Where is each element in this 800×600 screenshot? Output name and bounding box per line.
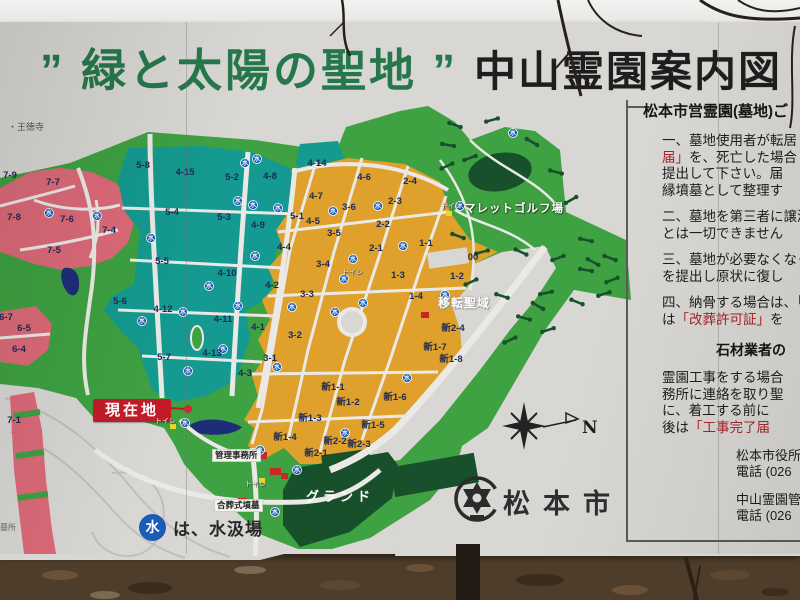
water-point-icon: 水 [184,367,193,376]
compass-north-label: N [582,418,598,438]
zone-label: 4-11 [214,314,233,325]
water-icon: 水 [139,514,166,541]
golf-hole-dot [450,232,454,236]
golf-hole-dot [513,335,517,339]
golf-hole-dot [439,166,443,170]
city-name: 松本市 [503,482,623,521]
golf-hole-dot [580,302,584,306]
communal-grave-label: 合葬式墳墓 [214,499,263,512]
golf-hole-dot [596,263,600,267]
zone-label: 4-1 [251,322,265,333]
water-point-icon: 水 [93,212,102,221]
notice-line: 届」を、死亡した場合 [662,150,800,167]
zone-label: 00 [468,252,479,263]
water-point-icon: 水 [234,197,243,206]
water-point-icon: 水 [241,159,250,168]
zone-label: 7-6 [60,214,74,225]
notice-line: を提出し原状に復し [662,269,800,286]
golf-hole-dot [452,144,456,148]
zone-label: 1-1 [419,238,433,249]
zone-label: 4-4 [277,242,291,253]
corner-note: 墓所 [0,522,16,533]
map-legend: 水 は、水汲場 [139,514,263,541]
golf-hole-dot [590,269,594,273]
zone-label: 5-7 [157,352,171,363]
zone-label: 4-7 [309,191,323,202]
zone-label: 5-3 [217,212,231,223]
water-point-icon: 水 [293,466,302,475]
golf-hole-dot [528,317,532,321]
zone-label: 2-3 [388,196,402,207]
golf-hole-dot [586,257,590,261]
golf-hole-mark [484,116,500,124]
zone-label: 新1-1 [321,381,345,393]
zone-label: 1-4 [409,291,423,302]
golf-hole-dot [461,236,465,240]
water-glyph: 水 [272,508,279,516]
water-glyph: 水 [242,159,249,167]
water-glyph: 水 [404,374,411,382]
golf-hole-dot [574,195,578,199]
golf-hole-dot [604,280,608,284]
zone-label: 1-2 [450,271,464,282]
water-glyph: 水 [510,129,517,137]
zone-label: 3-2 [288,330,302,341]
toilet-label: トイレ [342,267,363,277]
notice-line: に、着工する前に [662,403,800,420]
golf-hole-mark [564,195,579,205]
golf-hole-dot [540,330,544,334]
water-glyph: 水 [139,317,146,325]
golf-hole-dot [494,292,498,296]
golf-hole-dot [590,239,594,243]
notice-line: 四、納骨する場合は、「 [662,295,800,312]
notice-line: 一、墓地使用者が転居し [662,133,800,150]
zone-label: 2-4 [403,176,417,187]
golf-hole-dot [613,258,617,262]
zone-label: 新1-5 [361,419,385,431]
golf-hole-dot [560,171,564,175]
sign-panel-seam [186,22,187,554]
golf-hole-dot [531,301,535,305]
water-glyph: 水 [375,202,382,210]
zone-label: 6-4 [12,344,26,355]
zone-label: 新2-1 [304,447,328,459]
zone-label: 新1-4 [273,431,297,443]
notice-line: 提出して下さい。届 [662,166,800,183]
contact-tel: 電話 (026 [736,508,800,524]
golf-hole-dot [561,254,565,258]
zone-label: 4-14 [307,158,327,169]
zone-label: 7-1 [7,415,21,426]
golf-hole-dot [524,252,528,256]
water-point-icon: 水 [349,255,358,264]
golf-hole-dot [578,267,582,271]
golf-hole-dot [462,158,466,162]
golf-hole-dot [473,154,477,158]
zone-label: 6-7 [0,312,13,323]
zone-label: 4-10 [217,268,236,279]
water-point-icon: 水 [147,234,156,243]
notice-panel: 松本市営霊園(墓地)ご 一、墓地使用者が転居し 届」を、死亡した場合 提出して下… [626,100,800,542]
water-point-icon: 水 [138,317,147,326]
water-point-icon: 水 [331,308,340,317]
notice-subheader: 石材業者の [716,340,800,360]
contact-block: 松本市役所 電話 (026 [736,448,800,480]
golf-hole-dot [596,294,600,298]
golf-hole-dot [506,296,510,300]
zone-label: 5-2 [225,172,239,183]
golf-hole-dot [552,326,556,330]
zone-label: 4-3 [238,368,252,379]
golf-hole-dot [615,276,619,280]
zone-label: 新1-7 [423,341,446,353]
toilet-label: トイレ [245,479,266,489]
golf-hole-dot [538,292,542,296]
water-point-icon: 水 [288,303,297,312]
golf-hole-dot [564,201,568,205]
golf-hole-dot [486,248,490,252]
notice-line: 二、墓地を第三者に譲渡 [662,209,800,226]
zone-label: 新2-2 [323,435,346,447]
water-glyph: 水 [206,282,213,290]
golf-hole-dot [458,125,462,129]
zone-label: 5-5 [155,256,169,267]
golf-hole-dot [496,116,500,120]
water-glyph: 水 [360,299,367,307]
title-slogan: ” 緑と太陽の聖地 ” [40,45,458,96]
water-point-icon: 水 [329,207,338,216]
zone-label: 5-6 [113,296,127,307]
sign-panel-seam [718,22,719,554]
zone-label: 2-2 [376,219,390,230]
water-point-icon: 水 [274,204,283,213]
zone-label: 4-13 [202,348,221,359]
water-glyph: 水 [294,466,301,474]
notice-line: は「改葬許可証」を [662,312,800,329]
water-glyph: 水 [350,255,357,263]
notice-line: 務所に連絡を取り聖 [662,387,800,404]
golf-hole-dot [550,290,554,294]
water-glyph: 水 [148,234,155,242]
golf-hole-dot [608,290,612,294]
golf-hole-dot [569,298,573,302]
zone-label: 4-2 [265,280,279,291]
golf-hole-dot [474,277,478,281]
water-glyph: 水 [330,207,337,215]
golf-hole-dot [578,237,582,241]
golf-hole-dot [440,142,444,146]
title-main: 中山霊園案内図 [474,48,782,95]
photo-of-cemetery-sign: 水水水水水水水水水水水水水水水水水水水水水水水水水水水水水水水水水 5-84-1… [0,0,800,600]
zone-label: 3-3 [300,289,314,300]
water-point-icon: 水 [509,129,518,138]
water-point-icon: 水 [181,419,190,428]
water-point-icon: 水 [399,242,408,251]
golf-hole-dot [463,282,467,286]
water-point-icon: 水 [359,299,368,308]
golf-hole-dot [502,340,506,344]
zone-label: 5-1 [290,211,304,222]
water-glyph: 水 [289,303,296,311]
notice-line: とは一切できません [662,226,800,243]
water-point-icon: 水 [234,302,243,311]
golf-hole-dot [535,143,539,147]
zone-label: 1-3 [391,270,405,281]
zone-label: 4-6 [357,172,371,183]
water-point-icon: 水 [374,202,383,211]
zone-label: 2-1 [369,243,383,254]
zone-label: 5-8 [136,160,150,171]
water-point-icon: 水 [249,201,258,210]
water-point-icon: 水 [271,508,280,517]
admin-office-label: 管理事務所 [212,449,261,462]
temple-label: ・王徳寺 [8,120,44,133]
zone-label: 3-4 [316,259,330,270]
golf-hole-dot [513,247,517,251]
notice-line: 縁墳墓として整理す [662,183,800,200]
water-point-icon: 水 [45,209,54,218]
golf-hole-dot [447,121,451,125]
median-island [191,326,203,350]
water-point-icon: 水 [251,252,260,261]
water-glyph: 水 [252,252,259,260]
zone-label: 4-5 [306,216,320,227]
zone-label: 新1-3 [298,412,321,424]
notice-line: 後は「工事完了届 [662,420,800,437]
zone-label: 3-6 [342,202,356,213]
water-glyph: 水 [235,302,242,310]
zone-label: 7-9 [3,170,17,181]
golf-hole-dot [516,314,520,318]
water-glyph: 水 [332,308,339,316]
zone-label: 7-8 [7,212,21,223]
water-glyph: 水 [94,212,101,220]
water-point-icon: 水 [253,155,262,164]
zone-label: 7-4 [102,225,116,236]
mallet-golf-label: マレットゴルフ場 [464,200,564,216]
golf-hole-dot [550,258,554,262]
relocation-label: 移転聖域 [438,294,490,311]
water-glyph: 水 [400,242,407,250]
zone-label: 新1-8 [439,353,462,365]
contact-name: 松本市役所 [736,448,800,464]
zone-label: 新1-2 [336,396,359,408]
water-glyph: 水 [274,363,281,371]
contact-tel: 電話 (026 [736,464,800,480]
notice-header: 松本市営霊園(墓地)ご [643,100,800,121]
zone-label: 5-4 [165,207,179,218]
zone-label: 新2-4 [441,322,465,334]
golf-hole-dot [484,119,488,123]
notice-line: 三、墓地が必要なくなっ [662,252,800,269]
golf-hole-dot [450,161,454,165]
zone-label: 新1-6 [383,391,406,403]
zone-label: 3-1 [263,353,277,364]
toilet-label: トイレ [441,201,462,211]
toilet-label: トイレ [155,416,176,426]
water-glyph: 水 [46,209,53,217]
sports-ground-label: グランド [306,486,374,505]
sign-title: ” 緑と太陽の聖地 ”中山霊園案内図 [40,34,782,99]
golf-hole-dot [602,254,606,258]
water-glyph: 水 [254,155,261,163]
golf-hole-dot [525,137,529,141]
golf-hole-dot [548,168,552,172]
zone-label: 新2-3 [347,438,370,450]
panel-bracket [626,106,644,108]
zone-label: 4-12 [153,304,172,315]
roundabout [339,309,365,335]
water-glyph: 水 [250,201,257,209]
water-glyph: 水 [275,204,282,212]
zone-label: 4-9 [251,220,265,231]
notice-line: 霊園工事をする場合 [662,370,800,387]
contact-name: 中山霊園管 [736,492,800,508]
zone-label: 7-7 [46,177,60,188]
water-point-icon: 水 [205,282,214,291]
zone-label: 3-5 [327,228,341,239]
water-glyph: 水 [235,197,242,205]
golf-hole-dot [541,307,545,311]
zone-label: 4-8 [263,171,277,182]
zone-label: 7-5 [47,245,61,256]
zone-label: 6-5 [17,323,31,334]
contact-block: 中山霊園管 電話 (026 [736,492,800,524]
water-point-icon: 水 [403,374,412,383]
